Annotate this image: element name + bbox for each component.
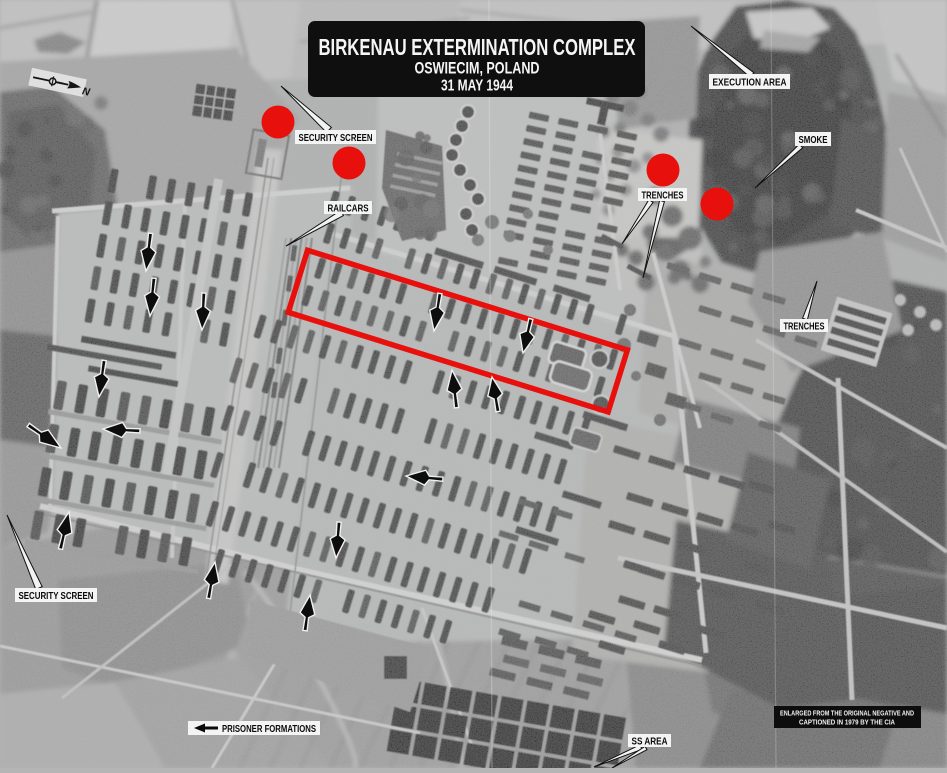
- svg-text:RAILCARS: RAILCARS: [328, 202, 369, 214]
- svg-text:SMOKE: SMOKE: [799, 134, 828, 146]
- svg-text:CAPTIONED IN 1979 BY THE CIA: CAPTIONED IN 1979 BY THE CIA: [799, 718, 895, 727]
- svg-text:PRISONER FORMATIONS: PRISONER FORMATIONS: [222, 723, 316, 735]
- svg-text:TRENCHES: TRENCHES: [642, 189, 684, 201]
- svg-text:SECURITY SCREEN: SECURITY SCREEN: [19, 590, 94, 602]
- svg-text:SS AREA: SS AREA: [632, 735, 668, 747]
- svg-text:TRENCHES: TRENCHES: [784, 320, 825, 332]
- svg-text:31 MAY 1944: 31 MAY 1944: [441, 78, 513, 95]
- svg-text:EXECUTION AREA: EXECUTION AREA: [713, 76, 787, 88]
- svg-text:OSWIECIM, POLAND: OSWIECIM, POLAND: [415, 59, 540, 78]
- svg-text:SECURITY SCREEN: SECURITY SCREEN: [299, 132, 373, 144]
- svg-text:ENLARGED FROM THE ORIGINAL NEG: ENLARGED FROM THE ORIGINAL NEGATIVE AND: [780, 709, 914, 718]
- svg-text:BIRKENAU EXTERMINATION COMPLEX: BIRKENAU EXTERMINATION COMPLEX: [319, 34, 636, 60]
